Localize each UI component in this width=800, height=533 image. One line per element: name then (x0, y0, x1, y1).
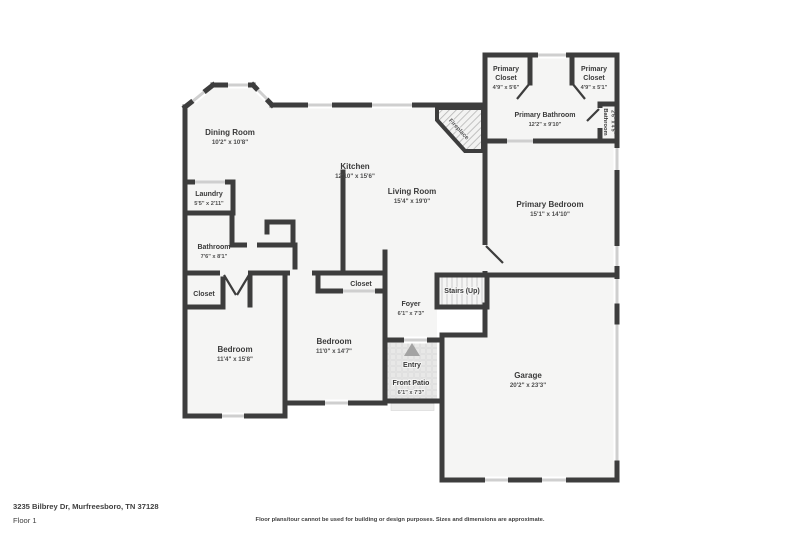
room-label-laundry: Laundry (195, 191, 223, 198)
room-label-primary-bedroom: Primary Bedroom (516, 200, 583, 209)
room-label-kitchen: Kitchen (340, 162, 369, 171)
room-label-closet-left: Closet (193, 291, 215, 298)
room-label-primary-bathroom: Primary Bathroom (514, 112, 575, 119)
room-label-dining: Dining Room (205, 128, 255, 137)
room-label-bathroom: Bathroom (197, 244, 230, 251)
floor-plan-page: Fireplace Dining Room 10'2" x 10'8" Kitc… (0, 0, 800, 533)
svg-text:Closet: Closet (495, 75, 517, 82)
svg-text:Closet: Closet (583, 75, 605, 82)
room-label-entry: Entry (403, 362, 421, 369)
room-label-stairs: Stairs (Up) (444, 288, 479, 295)
svg-text:4'9" x 5'6": 4'9" x 5'6" (493, 85, 520, 91)
svg-text:20'2" x 23'3": 20'2" x 23'3" (510, 382, 546, 389)
room-label-primary-closet-left: Primary Closet 4'9" x 5'6" (493, 66, 520, 91)
svg-text:7'6" x 8'1": 7'6" x 8'1" (201, 254, 228, 260)
floor-plan-canvas: Fireplace Dining Room 10'2" x 10'8" Kitc… (0, 0, 800, 533)
room-label-living: Living Room (388, 187, 436, 196)
svg-text:4'9" x 5'1": 4'9" x 5'1" (581, 85, 608, 91)
room-label-garage: Garage (514, 371, 542, 380)
svg-text:Primary: Primary (493, 66, 519, 73)
room-label-bedroom-2: Bedroom (316, 337, 351, 346)
svg-text:11'4" x 15'8": 11'4" x 15'8" (217, 356, 253, 363)
svg-text:12'2" x 9'10": 12'2" x 9'10" (529, 122, 562, 128)
svg-text:Bathroom: Bathroom (602, 108, 608, 135)
footer: 3235 Bilbrey Dr, Murfreesboro, TN 37128 … (13, 502, 545, 525)
svg-text:Primary: Primary (581, 66, 607, 73)
svg-text:11'0" x 14'7": 11'0" x 14'7" (316, 348, 352, 355)
floor-label: Floor 1 (13, 516, 37, 525)
room-label-front-patio: Front Patio (393, 380, 430, 387)
svg-text:15'4" x 19'0": 15'4" x 19'0" (394, 198, 430, 205)
disclaimer-text: Floor plans/tour cannot be used for buil… (256, 517, 545, 523)
patio-step (391, 404, 434, 411)
svg-text:6'1" x 7'3": 6'1" x 7'3" (398, 311, 425, 317)
svg-text:6'1" x 7'3": 6'1" x 7'3" (398, 390, 425, 396)
room-label-foyer: Foyer (401, 301, 420, 308)
room-label-primary-closet-right: Primary Closet 4'9" x 5'1" (581, 66, 608, 91)
address-text: 3235 Bilbrey Dr, Murfreesboro, TN 37128 (13, 502, 159, 511)
svg-text:15'1" x 14'10": 15'1" x 14'10" (530, 211, 570, 218)
room-label-bedroom-1: Bedroom (217, 345, 252, 354)
svg-text:2'6" x 4'5": 2'6" x 4'5" (610, 110, 616, 134)
room-label-closet-right: Closet (350, 281, 372, 288)
svg-text:10'2" x 10'8": 10'2" x 10'8" (212, 139, 248, 146)
svg-text:5'5" x 2'11": 5'5" x 2'11" (194, 201, 224, 207)
svg-text:12'10" x 15'6": 12'10" x 15'6" (335, 173, 375, 180)
room-label-small-bathroom: Bathroom 2'6" x 4'5" (602, 108, 616, 135)
